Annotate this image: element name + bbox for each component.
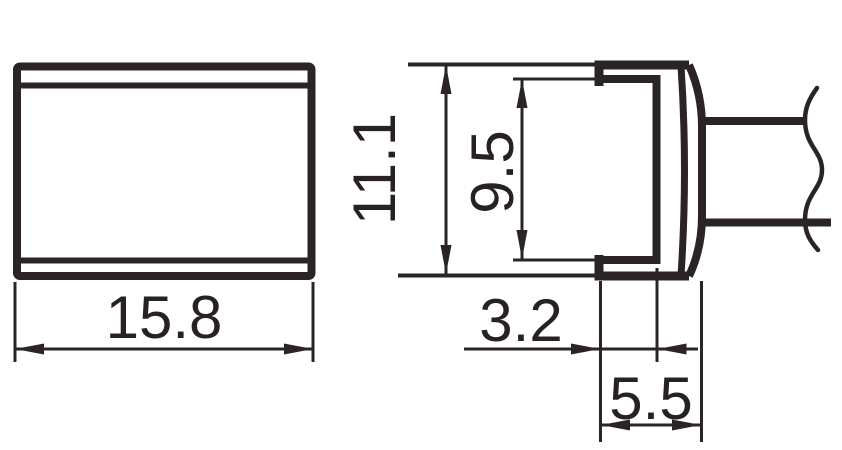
width-dimension-label: 15.8: [106, 284, 223, 351]
tunnel-inner-outline: [597, 79, 657, 260]
inner-height-dimension: 9.5: [459, 79, 597, 260]
head-depth-dimension: 5.5: [601, 281, 702, 442]
head-depth-dimension-label: 5.5: [609, 365, 692, 432]
flange-outer-curve: [689, 65, 702, 276]
arrowhead-down: [517, 230, 528, 259]
width-dimension: 15.8: [15, 282, 313, 362]
arrowhead-right: [284, 344, 313, 355]
inner-height-dimension-label: 9.5: [459, 130, 526, 213]
arrowhead-left: [15, 344, 44, 355]
front-view-outline: [17, 67, 312, 277]
front-view: [15, 67, 313, 277]
arrowhead-right: [571, 344, 600, 355]
technical-drawing-canvas: 15.8 11.1: [0, 0, 842, 450]
side-view: [597, 65, 831, 276]
slot-depth-dimension-label: 3.2: [479, 287, 562, 354]
arrowhead-left: [658, 344, 687, 355]
flange-inner-curve: [681, 66, 685, 275]
tip-dimension-drawing: 15.8 11.1: [0, 0, 842, 450]
arrowhead-up: [517, 79, 528, 108]
arrowhead-down: [441, 245, 452, 274]
height-dimension-label: 11.1: [341, 113, 408, 225]
arrowhead-up: [441, 65, 452, 94]
